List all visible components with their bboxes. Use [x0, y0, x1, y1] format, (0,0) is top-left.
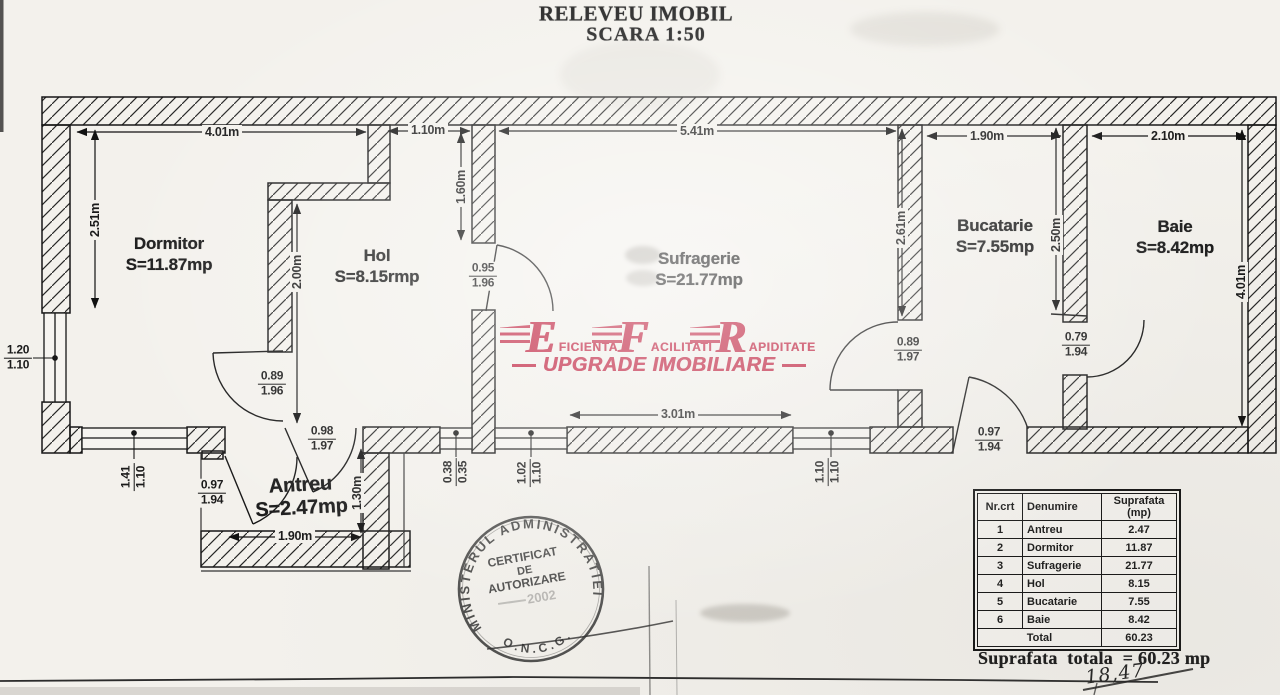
door-size-dormitor: 0.891.96 [257, 370, 287, 399]
scanned-floor-plan-page: MINISTERUL ADMINISTRATIEI O.N.C.G. CERTI… [0, 0, 1280, 695]
room-label-bucatarie: Bucatarie S=7.55mp [956, 215, 1034, 257]
room-name: Dormitor [126, 233, 213, 254]
room-area: S=11.87mp [126, 254, 213, 275]
room-name: Bucatarie [956, 215, 1034, 236]
total-value: 60.23 [1102, 629, 1177, 647]
room-label-antreu: Antreu S=2.47mp [254, 472, 349, 523]
table-row: 5Bucatarie7.55 [978, 593, 1177, 611]
room-area: S=21.77mp [655, 269, 743, 290]
logo-unit-r: R APIDITATE [690, 320, 816, 354]
table-row: 3Sufragerie21.77 [978, 557, 1177, 575]
window-size-110: 1.101.10 [814, 457, 843, 487]
dim-antreu-width: 1.90m [275, 529, 315, 543]
areas-table: Nr.crt Denumire Suprafata (mp) 1Antreu2.… [973, 489, 1181, 651]
window-size-bottom-left: 1.411.10 [120, 462, 149, 492]
speed-lines-icon [690, 325, 720, 347]
logo-tagline: UPGRADE IMOBILIARE [500, 354, 818, 377]
room-area: S=8.42mp [1136, 237, 1214, 258]
room-area: S=7.55mp [956, 236, 1034, 257]
table-row: 2Dormitor11.87 [978, 539, 1177, 557]
logo-letter: E [526, 320, 557, 354]
dim-sufragerie-bottom: 3.01m [658, 407, 698, 421]
room-label-baie: Baie S=8.42mp [1136, 216, 1214, 258]
room-area: S=8.15rmp [335, 266, 420, 287]
door-size-suf-buc: 0.891.97 [893, 336, 923, 365]
stamp-line4: 2002 [526, 587, 557, 607]
room-label-sufragerie: Sufragerie S=21.77mp [655, 248, 743, 290]
dim-baie-width: 2.10m [1148, 129, 1188, 143]
room-label-dormitor: Dormitor S=11.87mp [126, 233, 213, 275]
dim-dormitor-width: 4.01m [202, 125, 242, 139]
window-size-102: 1.021.10 [516, 458, 545, 488]
table-header-row: Nr.crt Denumire Suprafata (mp) [978, 494, 1177, 521]
col-header-nrcrt: Nr.crt [978, 494, 1023, 521]
dim-hol-height: 2.00m [290, 252, 304, 292]
room-name: Baie [1136, 216, 1214, 237]
window-size-left: 1.201.10 [3, 344, 33, 373]
certification-stamp: MINISTERUL ADMINISTRATIEI O.N.C.G. CERTI… [445, 504, 616, 672]
table-total-row: Total 60.23 [978, 629, 1177, 647]
dim-sufragerie-height: 2.61m [894, 208, 908, 248]
room-name: Hol [335, 245, 420, 266]
logo-letter: R [716, 320, 747, 354]
dim-baie-height: 4.01m [1234, 262, 1248, 302]
dim-sufragerie-width: 5.41m [677, 124, 717, 138]
door-size-balcon: 0.971.94 [974, 426, 1004, 455]
drawing-scale: SCARA 1:50 [586, 24, 705, 47]
door-size-hol-antreu: 0.981.97 [307, 425, 337, 454]
col-header-suprafata: Suprafata (mp) [1102, 494, 1177, 521]
dim-bucatarie-width: 1.90m [967, 129, 1007, 143]
col-header-denumire: Denumire [1023, 494, 1102, 521]
window-size-038: 0.380.35 [442, 457, 471, 487]
agency-logo: E FICIENTA F ACILITATI R APIDITATE UPGRA… [500, 320, 818, 376]
dim-hol-top-width: 1.10m [408, 123, 448, 137]
room-area: S=2.47mp [255, 495, 348, 523]
logo-letter: F [618, 320, 649, 354]
total-label: Total [978, 629, 1102, 647]
dim-hol-wall: 1.60m [454, 167, 468, 207]
dim-dormitor-height: 2.51m [88, 200, 102, 240]
room-name: Sufragerie [655, 248, 743, 269]
logo-word: APIDITATE [749, 340, 816, 354]
door-size-hol-suf: 0.951.96 [468, 262, 498, 291]
table-row: 4Hol8.15 [978, 575, 1177, 593]
dim-antreu-height: 1.30m [350, 473, 364, 513]
door-size-baie: 0.791.94 [1061, 331, 1091, 360]
table-row: 1Antreu2.47 [978, 521, 1177, 539]
door-size-antreu-ext: 0.971.94 [197, 479, 227, 508]
dim-bucatarie-height: 2.50m [1049, 215, 1063, 255]
speed-lines-icon [500, 325, 530, 347]
table-row: 6Baie8.42 [978, 611, 1177, 629]
room-label-hol: Hol S=8.15rmp [335, 245, 420, 287]
speed-lines-icon [592, 325, 622, 347]
